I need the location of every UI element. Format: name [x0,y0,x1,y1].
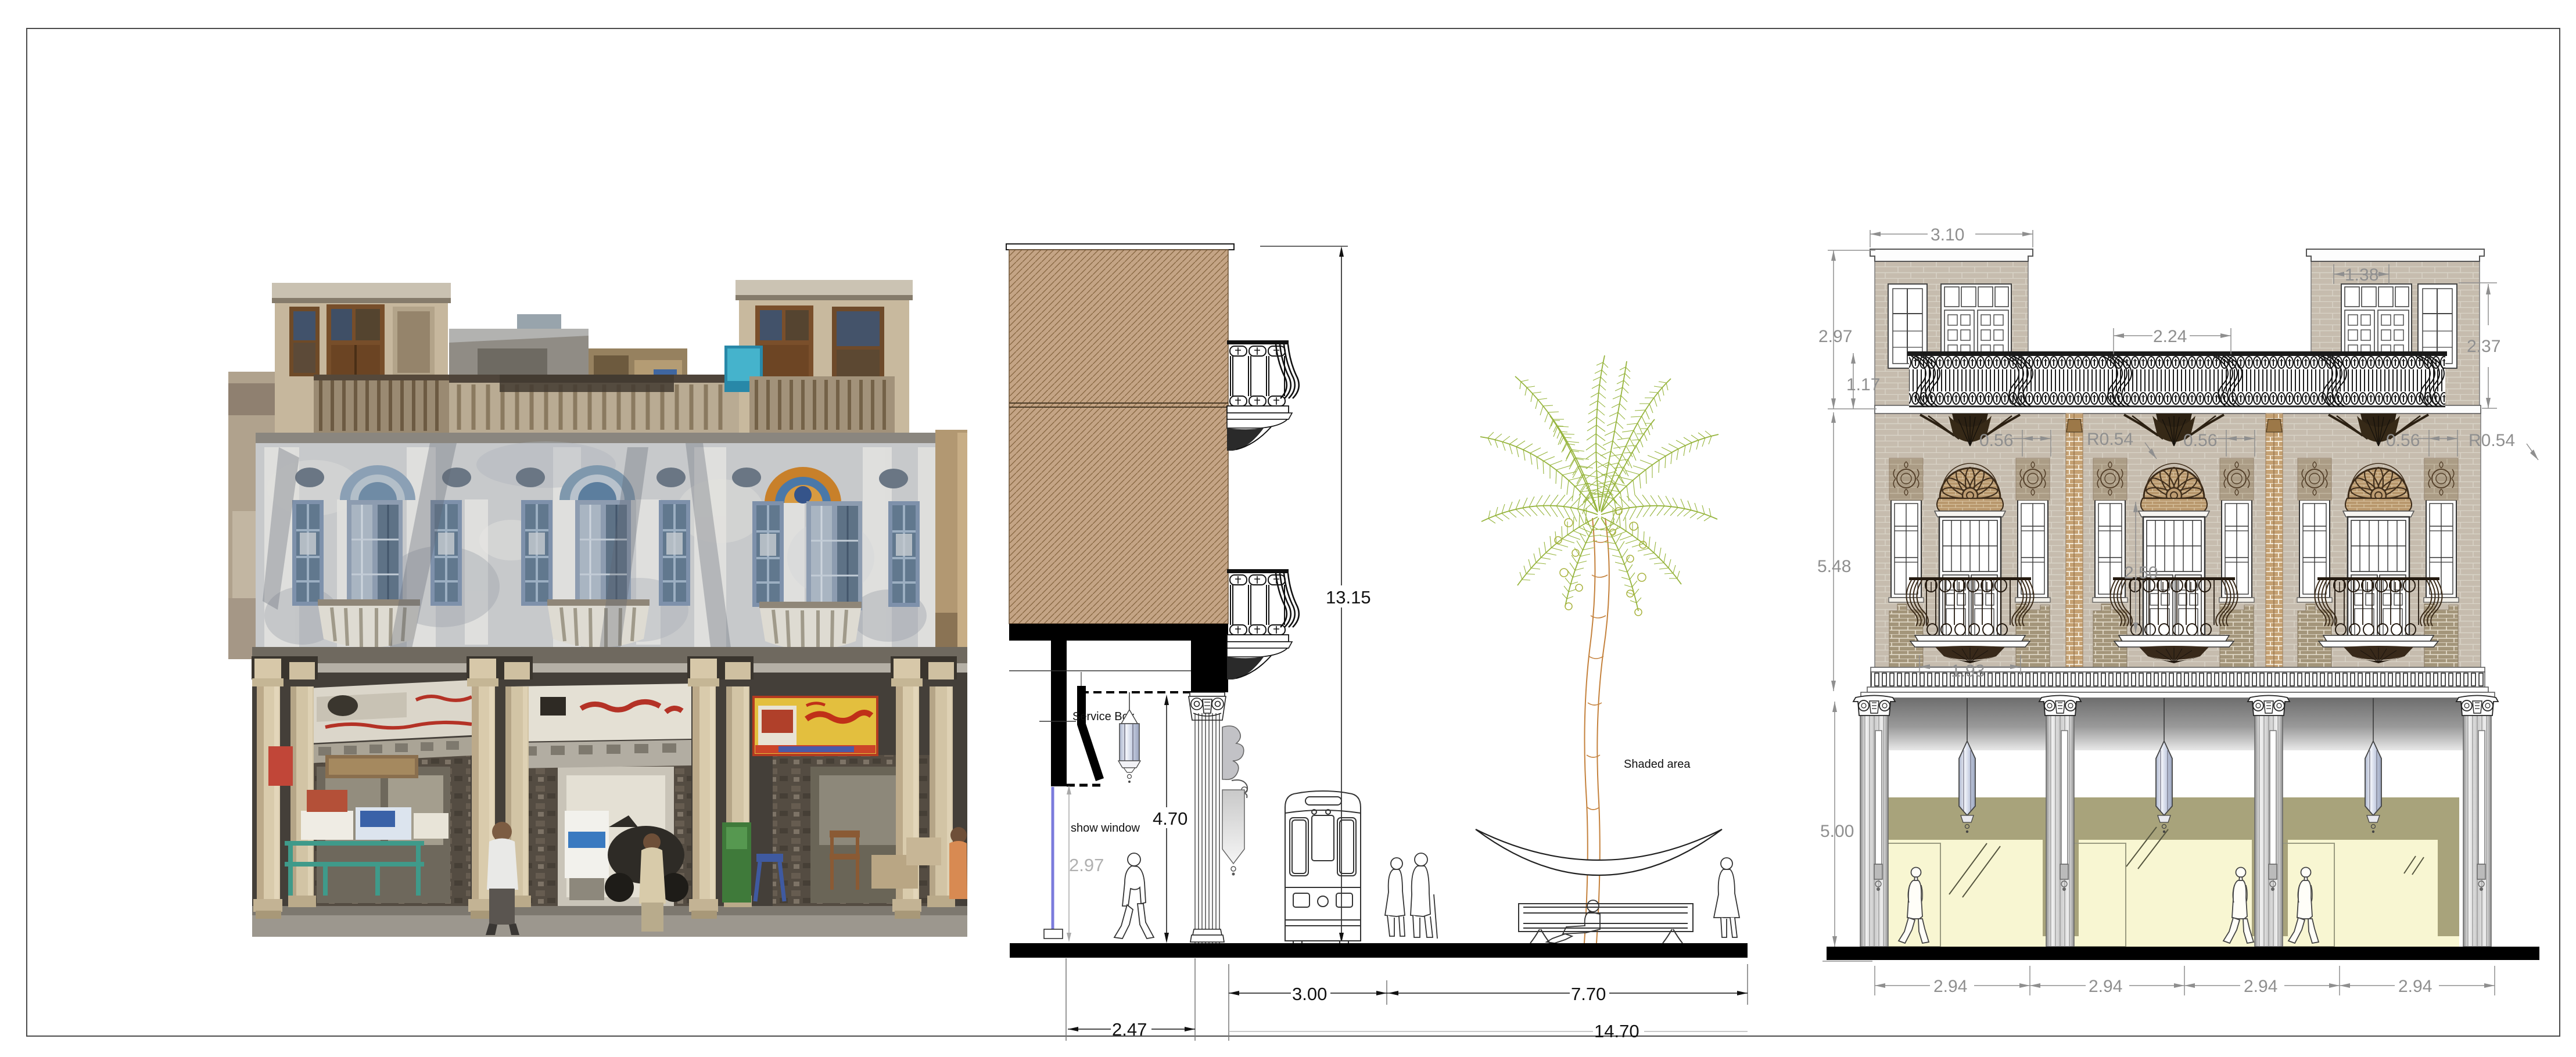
svg-text:0.56: 0.56 [2183,431,2217,450]
svg-text:4.70: 4.70 [1153,808,1187,829]
svg-text:R0.54: R0.54 [2469,431,2515,450]
svg-text:2.94: 2.94 [2398,977,2432,996]
svg-text:2.37: 2.37 [2467,337,2500,356]
svg-text:13.15: 13.15 [1326,587,1371,607]
svg-text:3.00: 3.00 [1292,984,1327,1004]
svg-text:2.94: 2.94 [2089,977,2122,996]
svg-text:1.17: 1.17 [1846,375,1880,394]
svg-text:2.47: 2.47 [1112,1019,1147,1040]
svg-text:R0.54: R0.54 [2087,430,2133,449]
svg-text:2.94: 2.94 [1933,977,1967,996]
svg-text:5.00: 5.00 [1820,822,1854,841]
svg-text:2.94: 2.94 [2244,977,2277,996]
svg-text:1.38: 1.38 [2345,265,2378,285]
svg-text:0.56: 0.56 [1979,431,2013,450]
svg-text:0.56: 0.56 [2386,431,2420,450]
svg-text:2.24: 2.24 [2153,327,2187,346]
svg-text:2.50: 2.50 [2124,563,2158,583]
svg-text:3.10: 3.10 [1931,225,1964,245]
svg-text:2.97: 2.97 [1069,855,1104,875]
svg-text:7.70: 7.70 [1571,984,1606,1004]
svg-text:2.97: 2.97 [1818,327,1852,346]
svg-text:show window: show window [1071,822,1140,835]
svg-text:Shaded area: Shaded area [1624,758,1691,771]
svg-text:5.48: 5.48 [1817,557,1851,576]
svg-text:1.93: 1.93 [1951,661,1985,681]
svg-text:14.70: 14.70 [1594,1021,1639,1041]
